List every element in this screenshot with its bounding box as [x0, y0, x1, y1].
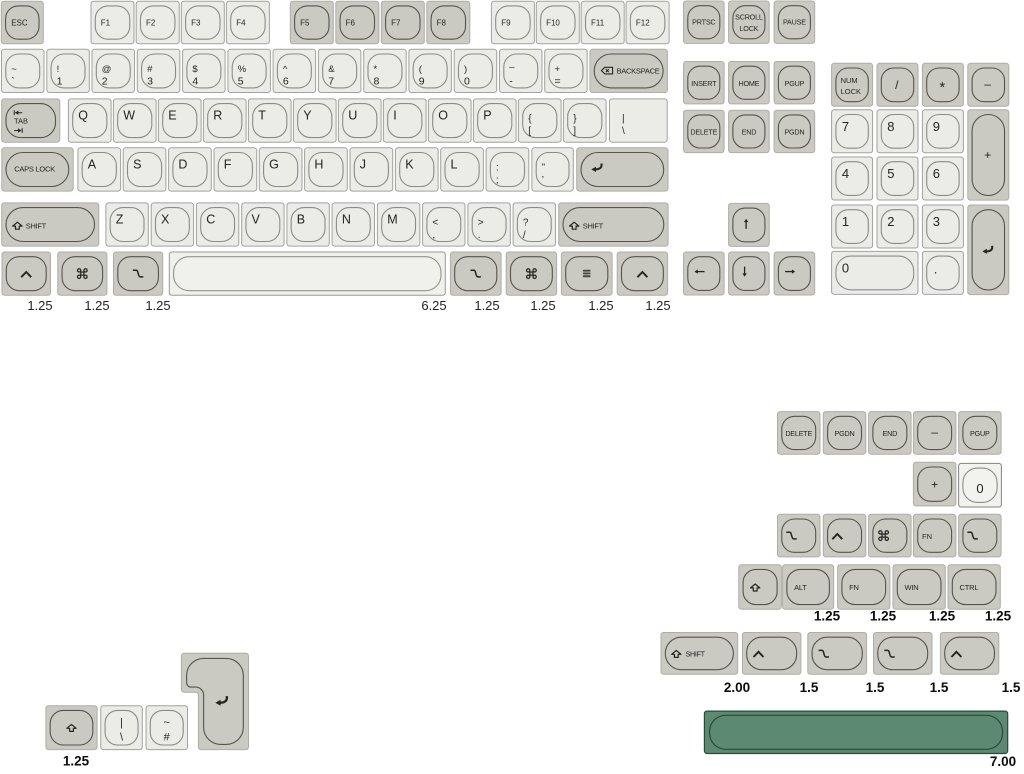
svg-text:CTRL: CTRL: [960, 583, 979, 592]
svg-text:<: <: [432, 218, 438, 229]
svg-text:-: -: [509, 75, 513, 87]
svg-text:F10: F10: [546, 18, 560, 27]
svg-text:%: %: [238, 64, 247, 75]
svg-text:U: U: [348, 109, 357, 123]
svg-text:Y: Y: [303, 109, 312, 123]
svg-text:1.25: 1.25: [985, 609, 1012, 624]
svg-text:4: 4: [842, 166, 849, 181]
svg-text:|: |: [120, 717, 123, 729]
svg-text:1.5: 1.5: [866, 680, 885, 695]
svg-text:ESC: ESC: [11, 18, 28, 27]
svg-text:5: 5: [238, 75, 244, 87]
svg-text:CAPS LOCK: CAPS LOCK: [14, 165, 55, 174]
svg-text:ALT: ALT: [794, 583, 807, 592]
svg-text:F12: F12: [636, 18, 650, 27]
svg-text:8: 8: [887, 119, 894, 134]
svg-text:F1: F1: [101, 18, 111, 27]
svg-text:?: ?: [523, 218, 529, 229]
svg-text:F7: F7: [391, 18, 401, 27]
svg-text:F4: F4: [236, 18, 246, 27]
svg-text:1: 1: [57, 75, 63, 87]
svg-text:1.25: 1.25: [814, 609, 841, 624]
svg-text:0: 0: [464, 75, 470, 87]
svg-text:F2: F2: [146, 18, 156, 27]
svg-text:F11: F11: [591, 18, 605, 27]
svg-text:3: 3: [933, 214, 940, 229]
svg-text:K: K: [405, 158, 414, 172]
svg-text:1.25: 1.25: [645, 298, 670, 313]
svg-text:6.25: 6.25: [421, 298, 446, 313]
svg-text:*: *: [939, 80, 945, 96]
svg-text:–: –: [509, 62, 515, 73]
svg-text:DELETE: DELETE: [785, 429, 812, 438]
svg-text:G: G: [269, 158, 279, 172]
svg-text:1.25: 1.25: [145, 298, 170, 313]
svg-text:F5: F5: [300, 18, 310, 27]
svg-text:1.5: 1.5: [930, 680, 949, 695]
svg-text:LOCK: LOCK: [841, 87, 861, 96]
svg-text:+: +: [555, 64, 561, 75]
svg-text:]: ]: [573, 126, 576, 137]
svg-text:M: M: [387, 213, 397, 227]
svg-text:”: ”: [542, 163, 545, 174]
svg-text:PGDN: PGDN: [784, 128, 804, 137]
svg-text:1.25: 1.25: [63, 754, 90, 769]
svg-text:$: $: [192, 64, 198, 75]
svg-text:1.25: 1.25: [588, 298, 613, 313]
svg-text:PRTSC: PRTSC: [692, 18, 715, 27]
svg-text:T: T: [258, 109, 266, 123]
svg-text:1.25: 1.25: [474, 298, 499, 313]
svg-text:SHIFT: SHIFT: [686, 650, 706, 659]
svg-text:&: &: [328, 64, 335, 75]
svg-text:Q: Q: [78, 109, 88, 123]
svg-text:\: \: [622, 126, 625, 137]
svg-text:@: @: [102, 64, 112, 75]
svg-text:BACKSPACE: BACKSPACE: [617, 67, 660, 76]
svg-text:5: 5: [887, 166, 894, 181]
svg-text:PGDN: PGDN: [835, 429, 855, 438]
svg-text:INSERT: INSERT: [691, 79, 717, 88]
svg-text:V: V: [252, 213, 261, 227]
svg-text:/: /: [523, 230, 526, 241]
svg-text:F: F: [224, 158, 232, 172]
svg-text:1.5: 1.5: [1002, 680, 1021, 695]
svg-text:[: [: [528, 126, 531, 137]
svg-text:1: 1: [842, 214, 849, 229]
svg-text:F3: F3: [191, 18, 201, 27]
svg-text:~: ~: [163, 717, 169, 729]
svg-text:END: END: [883, 429, 898, 438]
svg-text:O: O: [438, 109, 448, 123]
svg-text:SHIFT: SHIFT: [583, 222, 604, 231]
svg-text:DELETE: DELETE: [690, 128, 717, 137]
svg-text:1.25: 1.25: [27, 298, 52, 313]
svg-text:Z: Z: [116, 213, 124, 227]
svg-text:F9: F9: [501, 18, 511, 27]
svg-text:S: S: [133, 158, 141, 172]
svg-text:0: 0: [842, 260, 849, 275]
svg-text:,: ,: [432, 230, 435, 241]
svg-text:B: B: [297, 213, 305, 227]
svg-text:1.25: 1.25: [84, 298, 109, 313]
svg-text:#: #: [147, 64, 153, 75]
svg-text:END: END: [742, 128, 757, 137]
svg-text:E: E: [168, 109, 176, 123]
svg-text:D: D: [178, 158, 187, 172]
svg-text:1.5: 1.5: [800, 680, 819, 695]
svg-text:HOME: HOME: [739, 79, 760, 88]
svg-text:;: ;: [496, 175, 499, 186]
svg-text:2: 2: [887, 214, 894, 229]
svg-text:C: C: [206, 213, 215, 227]
svg-text:3: 3: [147, 75, 153, 87]
svg-text:+: +: [931, 477, 938, 491]
svg-text:PGUP: PGUP: [970, 429, 990, 438]
svg-text:7: 7: [328, 75, 334, 87]
svg-text:9: 9: [933, 119, 940, 134]
svg-text:#: #: [164, 732, 171, 744]
svg-text:X: X: [161, 213, 170, 227]
svg-text:7: 7: [842, 119, 849, 134]
svg-text:P: P: [483, 109, 491, 123]
svg-text:’: ’: [542, 175, 544, 186]
svg-text:1.25: 1.25: [530, 298, 555, 313]
svg-text:`: `: [11, 75, 15, 87]
svg-text:|: |: [622, 114, 625, 125]
svg-text:PAUSE: PAUSE: [783, 18, 806, 27]
svg-text:F8: F8: [437, 18, 447, 27]
svg-text:6: 6: [283, 75, 289, 87]
svg-text:+: +: [984, 148, 991, 162]
svg-text:!: !: [57, 64, 60, 75]
svg-text:2: 2: [102, 75, 108, 87]
svg-text:WIN: WIN: [905, 583, 919, 592]
svg-text:A: A: [88, 158, 97, 172]
svg-text:4: 4: [192, 75, 198, 87]
svg-text:FN: FN: [849, 583, 859, 592]
svg-text:LOCK: LOCK: [740, 24, 759, 33]
svg-text:2.00: 2.00: [724, 680, 750, 695]
svg-text:1.25: 1.25: [929, 609, 956, 624]
svg-text:SCROLL: SCROLL: [735, 13, 763, 22]
svg-text:H: H: [314, 158, 323, 172]
svg-text:PGUP: PGUP: [785, 79, 805, 88]
svg-text:N: N: [342, 213, 351, 227]
svg-text:J: J: [360, 158, 366, 172]
svg-text:.: .: [934, 261, 938, 276]
svg-text:F6: F6: [346, 18, 356, 27]
svg-text:TAB: TAB: [14, 117, 28, 126]
svg-text:1.25: 1.25: [870, 609, 897, 624]
svg-text:9: 9: [419, 75, 425, 87]
svg-text:7.00: 7.00: [990, 754, 1016, 769]
svg-text:NUM: NUM: [841, 76, 858, 85]
svg-text:W: W: [123, 109, 135, 123]
svg-text:I: I: [393, 109, 396, 123]
svg-text:): ): [464, 64, 467, 75]
svg-text:FN: FN: [922, 532, 932, 541]
svg-text:*: *: [374, 64, 378, 75]
svg-text:^: ^: [283, 64, 288, 75]
svg-text:R: R: [213, 109, 222, 123]
svg-text:0: 0: [976, 481, 983, 496]
svg-text:~: ~: [11, 64, 17, 75]
svg-text:.: .: [478, 230, 481, 241]
svg-text:6: 6: [933, 166, 940, 181]
svg-text:–: –: [984, 77, 991, 91]
svg-text:>: >: [478, 218, 484, 229]
svg-text::: :: [496, 163, 499, 174]
svg-text:–: –: [931, 425, 938, 439]
svg-text:8: 8: [374, 75, 380, 87]
svg-text:=: =: [555, 75, 561, 87]
svg-text:SHIFT: SHIFT: [26, 222, 47, 231]
svg-text:L: L: [451, 158, 458, 172]
